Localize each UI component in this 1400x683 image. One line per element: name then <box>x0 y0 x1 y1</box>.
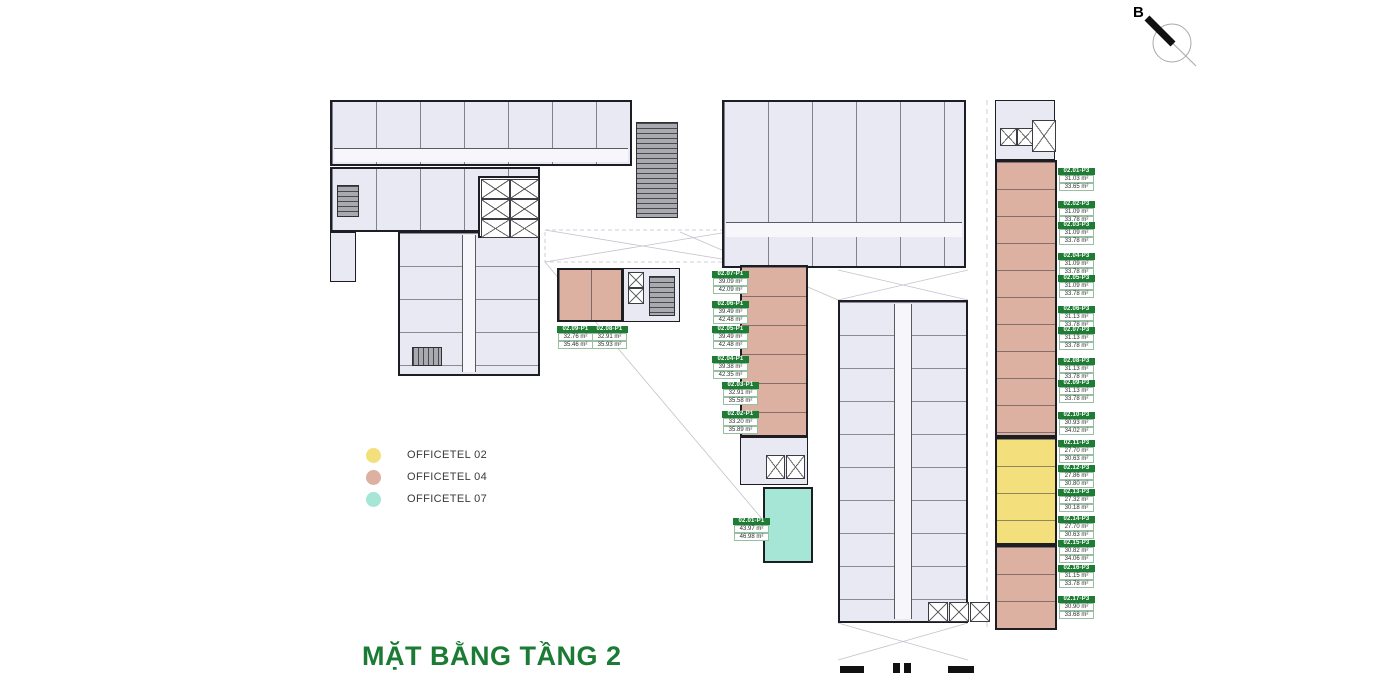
unit-id-badge: 02.11-P3 <box>1058 440 1095 447</box>
elevator-icon <box>949 602 969 622</box>
unit-label: 02.10-P330.93 m²34.02 m² <box>1058 412 1095 435</box>
unit-id-badge: 02.07-P3 <box>1058 327 1095 334</box>
unit-area: 30.80 m² <box>1059 480 1094 488</box>
unit-area: 31.03 m² <box>1059 175 1094 183</box>
unit-area: 31.13 m² <box>1059 387 1094 395</box>
unit-area: 33.20 m² <box>723 418 758 426</box>
unit-area: 42.09 m² <box>713 286 748 294</box>
unit-label: 02.02-P331.09 m²33.78 m² <box>1058 201 1095 224</box>
unit-area: 34.06 m² <box>1059 555 1094 563</box>
block-central-north <box>722 100 966 268</box>
compass-icon: B <box>1125 0 1210 78</box>
unit-label: 02.01-P143.97 m²46.98 m² <box>733 518 770 541</box>
wall-mark <box>904 663 911 673</box>
unit-area: 32.76 m² <box>558 333 593 341</box>
floorplan-canvas: 02.01-P331.03 m²33.65 m²02.02-P331.09 m²… <box>0 0 1400 683</box>
unit-area: 39.49 m² <box>713 308 748 316</box>
unit-area: 27.70 m² <box>1059 523 1094 531</box>
unit-label: 02.04-P331.09 m²33.78 m² <box>1058 253 1095 276</box>
elevator-icon <box>628 272 644 288</box>
unit-id-badge: 02.03-P1 <box>722 382 759 389</box>
unit-area: 39.09 m² <box>713 278 748 286</box>
unit-area: 32.91 m² <box>723 389 758 397</box>
corridor <box>726 222 962 237</box>
unit-id-badge: 02.02-P3 <box>1058 201 1095 208</box>
unit-label: 02.17-P330.90 m²33.68 m² <box>1058 596 1095 619</box>
unit-label: 02.03-P132.91 m²35.58 m² <box>722 382 759 405</box>
legend-label: OFFICETEL 07 <box>407 493 487 505</box>
unit-label: 02.09-P331.13 m²33.78 m² <box>1058 380 1095 403</box>
unit-id-badge: 02.03-P3 <box>1058 222 1095 229</box>
unit-label: 02.16-P331.15 m²33.78 m² <box>1058 565 1095 588</box>
unit-id-badge: 02.14-P3 <box>1058 516 1095 523</box>
unit-area: 43.97 m² <box>734 525 769 533</box>
stairwell-pair <box>649 276 675 316</box>
unit-id-badge: 02.04-P1 <box>712 356 749 363</box>
elevator-icon <box>970 602 990 622</box>
unit-area: 33.65 m² <box>1059 183 1094 191</box>
wall-mark <box>893 663 900 673</box>
corridor <box>334 148 628 162</box>
officetel04-east-bottom <box>995 545 1057 630</box>
unit-label: 02.14-P327.70 m²30.63 m² <box>1058 516 1095 539</box>
unit-area: 46.98 m² <box>734 533 769 541</box>
unit-area: 31.09 m² <box>1059 208 1094 216</box>
unit-label: 02.05-P139.49 m²42.48 m² <box>712 326 749 349</box>
unit-label: 02.06-P139.49 m²42.48 m² <box>712 301 749 324</box>
unit-area: 39.38 m² <box>713 363 748 371</box>
unit-id-badge: 02.08-P3 <box>1058 358 1095 365</box>
unit-id-badge: 02.08-P1 <box>591 326 628 333</box>
elevator-icon <box>510 219 539 238</box>
unit-area: 27.70 m² <box>1059 447 1094 455</box>
legend-label: OFFICETEL 02 <box>407 449 487 461</box>
unit-area: 35.93 m² <box>592 341 627 349</box>
legend-label: OFFICETEL 04 <box>407 471 487 483</box>
unit-area: 33.78 m² <box>1059 290 1094 298</box>
unit-id-badge: 02.15-P3 <box>1058 540 1095 547</box>
north-label: B <box>1133 4 1144 21</box>
corridor <box>462 235 476 372</box>
unit-area: 33.78 m² <box>1059 237 1094 245</box>
unit-id-badge: 02.09-P3 <box>1058 380 1095 387</box>
unit-area: 42.35 m² <box>713 371 748 379</box>
wing-north <box>330 100 632 166</box>
unit-area: 35.58 m² <box>723 397 758 405</box>
officetel04-swatch-icon <box>366 470 381 485</box>
unit-area: 30.90 m² <box>1059 603 1094 611</box>
unit-area: 30.18 m² <box>1059 504 1094 512</box>
elevator-icon <box>786 455 805 479</box>
unit-id-badge: 02.06-P1 <box>712 301 749 308</box>
unit-id-badge: 02.05-P3 <box>1058 275 1095 282</box>
unit-id-badge: 02.01-P1 <box>733 518 770 525</box>
unit-label: 02.08-P331.13 m²33.78 m² <box>1058 358 1095 381</box>
unit-label: 02.12-P327.86 m²30.80 m² <box>1058 465 1095 488</box>
officetel07-swatch-icon <box>366 492 381 507</box>
unit-area: 31.09 m² <box>1059 282 1094 290</box>
unit-id-badge: 02.02-P1 <box>722 411 759 418</box>
unit-id-badge: 02.13-P3 <box>1058 489 1095 496</box>
unit-label: 02.01-P331.03 m²33.65 m² <box>1058 168 1095 191</box>
unit-label: 02.07-P331.13 m²33.78 m² <box>1058 327 1095 350</box>
unit-label: 02.09-P132.76 m²35.46 m² <box>557 326 594 349</box>
unit-label: 02.15-P330.82 m²34.06 m² <box>1058 540 1095 563</box>
stairwell-main <box>636 122 678 218</box>
unit-label: 02.13-P327.32 m²30.18 m² <box>1058 489 1095 512</box>
unit-id-badge: 02.10-P3 <box>1058 412 1095 419</box>
unit-area: 35.46 m² <box>558 341 593 349</box>
elevator-icon <box>481 219 510 238</box>
unit-label: 02.06-P331.13 m²33.78 m² <box>1058 306 1095 329</box>
unit-area: 31.13 m² <box>1059 365 1094 373</box>
shaft-icon <box>1032 120 1056 152</box>
unit-area: 31.09 m² <box>1059 229 1094 237</box>
unit-area: 39.49 m² <box>713 333 748 341</box>
unit-id-badge: 02.07-P1 <box>712 271 749 278</box>
officetel07-unit <box>763 487 813 563</box>
officetel02-east <box>995 437 1057 545</box>
unit-id-badge: 02.05-P1 <box>712 326 749 333</box>
unit-label: 02.04-P139.38 m²42.35 m² <box>712 356 749 379</box>
elevator-icon <box>510 179 539 199</box>
stairwell-southwest <box>412 347 442 366</box>
unit-label: 02.03-P331.09 m²33.78 m² <box>1058 222 1095 245</box>
unit-id-badge: 02.17-P3 <box>1058 596 1095 603</box>
elevator-icon <box>481 179 510 199</box>
officetel02-swatch-icon <box>366 448 381 463</box>
unit-area: 31.15 m² <box>1059 572 1094 580</box>
stairwell-west <box>337 185 359 217</box>
unit-label: 02.08-P132.91 m²35.93 m² <box>591 326 628 349</box>
unit-id-badge: 02.16-P3 <box>1058 565 1095 572</box>
unit-id-badge: 02.04-P3 <box>1058 253 1095 260</box>
unit-area: 33.78 m² <box>1059 342 1094 350</box>
officetel04-east-top <box>995 160 1057 437</box>
unit-label: 02.05-P331.09 m²33.78 m² <box>1058 275 1095 298</box>
unit-area: 27.32 m² <box>1059 496 1094 504</box>
unit-area: 31.13 m² <box>1059 313 1094 321</box>
elevator-icon <box>628 288 644 304</box>
unit-label: 02.07-P139.09 m²42.09 m² <box>712 271 749 294</box>
officetel04-left-pair <box>557 268 623 322</box>
legend-item-officetel02: OFFICETEL 02 <box>366 444 487 466</box>
unit-id-badge: 02.01-P3 <box>1058 168 1095 175</box>
unit-area: 33.78 m² <box>1059 395 1094 403</box>
wing-west-annex <box>330 232 356 282</box>
unit-area: 27.86 m² <box>1059 472 1094 480</box>
unit-area: 31.13 m² <box>1059 334 1094 342</box>
wall-mark <box>840 666 864 673</box>
elevator-icon <box>1000 128 1017 146</box>
legend: OFFICETEL 02 OFFICETEL 04 OFFICETEL 07 <box>366 444 487 510</box>
elevator-icon <box>766 455 785 479</box>
unit-id-badge: 02.12-P3 <box>1058 465 1095 472</box>
legend-item-officetel07: OFFICETEL 07 <box>366 488 487 510</box>
elevator-icon <box>928 602 948 622</box>
elevator-icon <box>510 199 539 219</box>
elevator-icon <box>481 199 510 219</box>
unit-area: 35.89 m² <box>723 426 758 434</box>
unit-area: 30.63 m² <box>1059 455 1094 463</box>
unit-area: 30.63 m² <box>1059 531 1094 539</box>
legend-item-officetel04: OFFICETEL 04 <box>366 466 487 488</box>
unit-id-badge: 02.06-P3 <box>1058 306 1095 313</box>
construction-lines <box>0 0 1400 683</box>
wall-mark <box>948 666 974 673</box>
unit-label: 02.02-P133.20 m²35.89 m² <box>722 411 759 434</box>
unit-area: 32.91 m² <box>592 333 627 341</box>
unit-area: 30.93 m² <box>1059 419 1094 427</box>
unit-area: 42.48 m² <box>713 341 748 349</box>
unit-area: 33.78 m² <box>1059 580 1094 588</box>
unit-area: 42.48 m² <box>713 316 748 324</box>
unit-area: 30.82 m² <box>1059 547 1094 555</box>
unit-area: 31.09 m² <box>1059 260 1094 268</box>
unit-area: 34.02 m² <box>1059 427 1094 435</box>
unit-area: 33.68 m² <box>1059 611 1094 619</box>
unit-label: 02.11-P327.70 m²30.63 m² <box>1058 440 1095 463</box>
tower-central <box>838 300 968 623</box>
corridor <box>894 304 912 619</box>
page-title: MẶT BẰNG TẦNG 2 <box>362 641 622 672</box>
unit-id-badge: 02.09-P1 <box>557 326 594 333</box>
